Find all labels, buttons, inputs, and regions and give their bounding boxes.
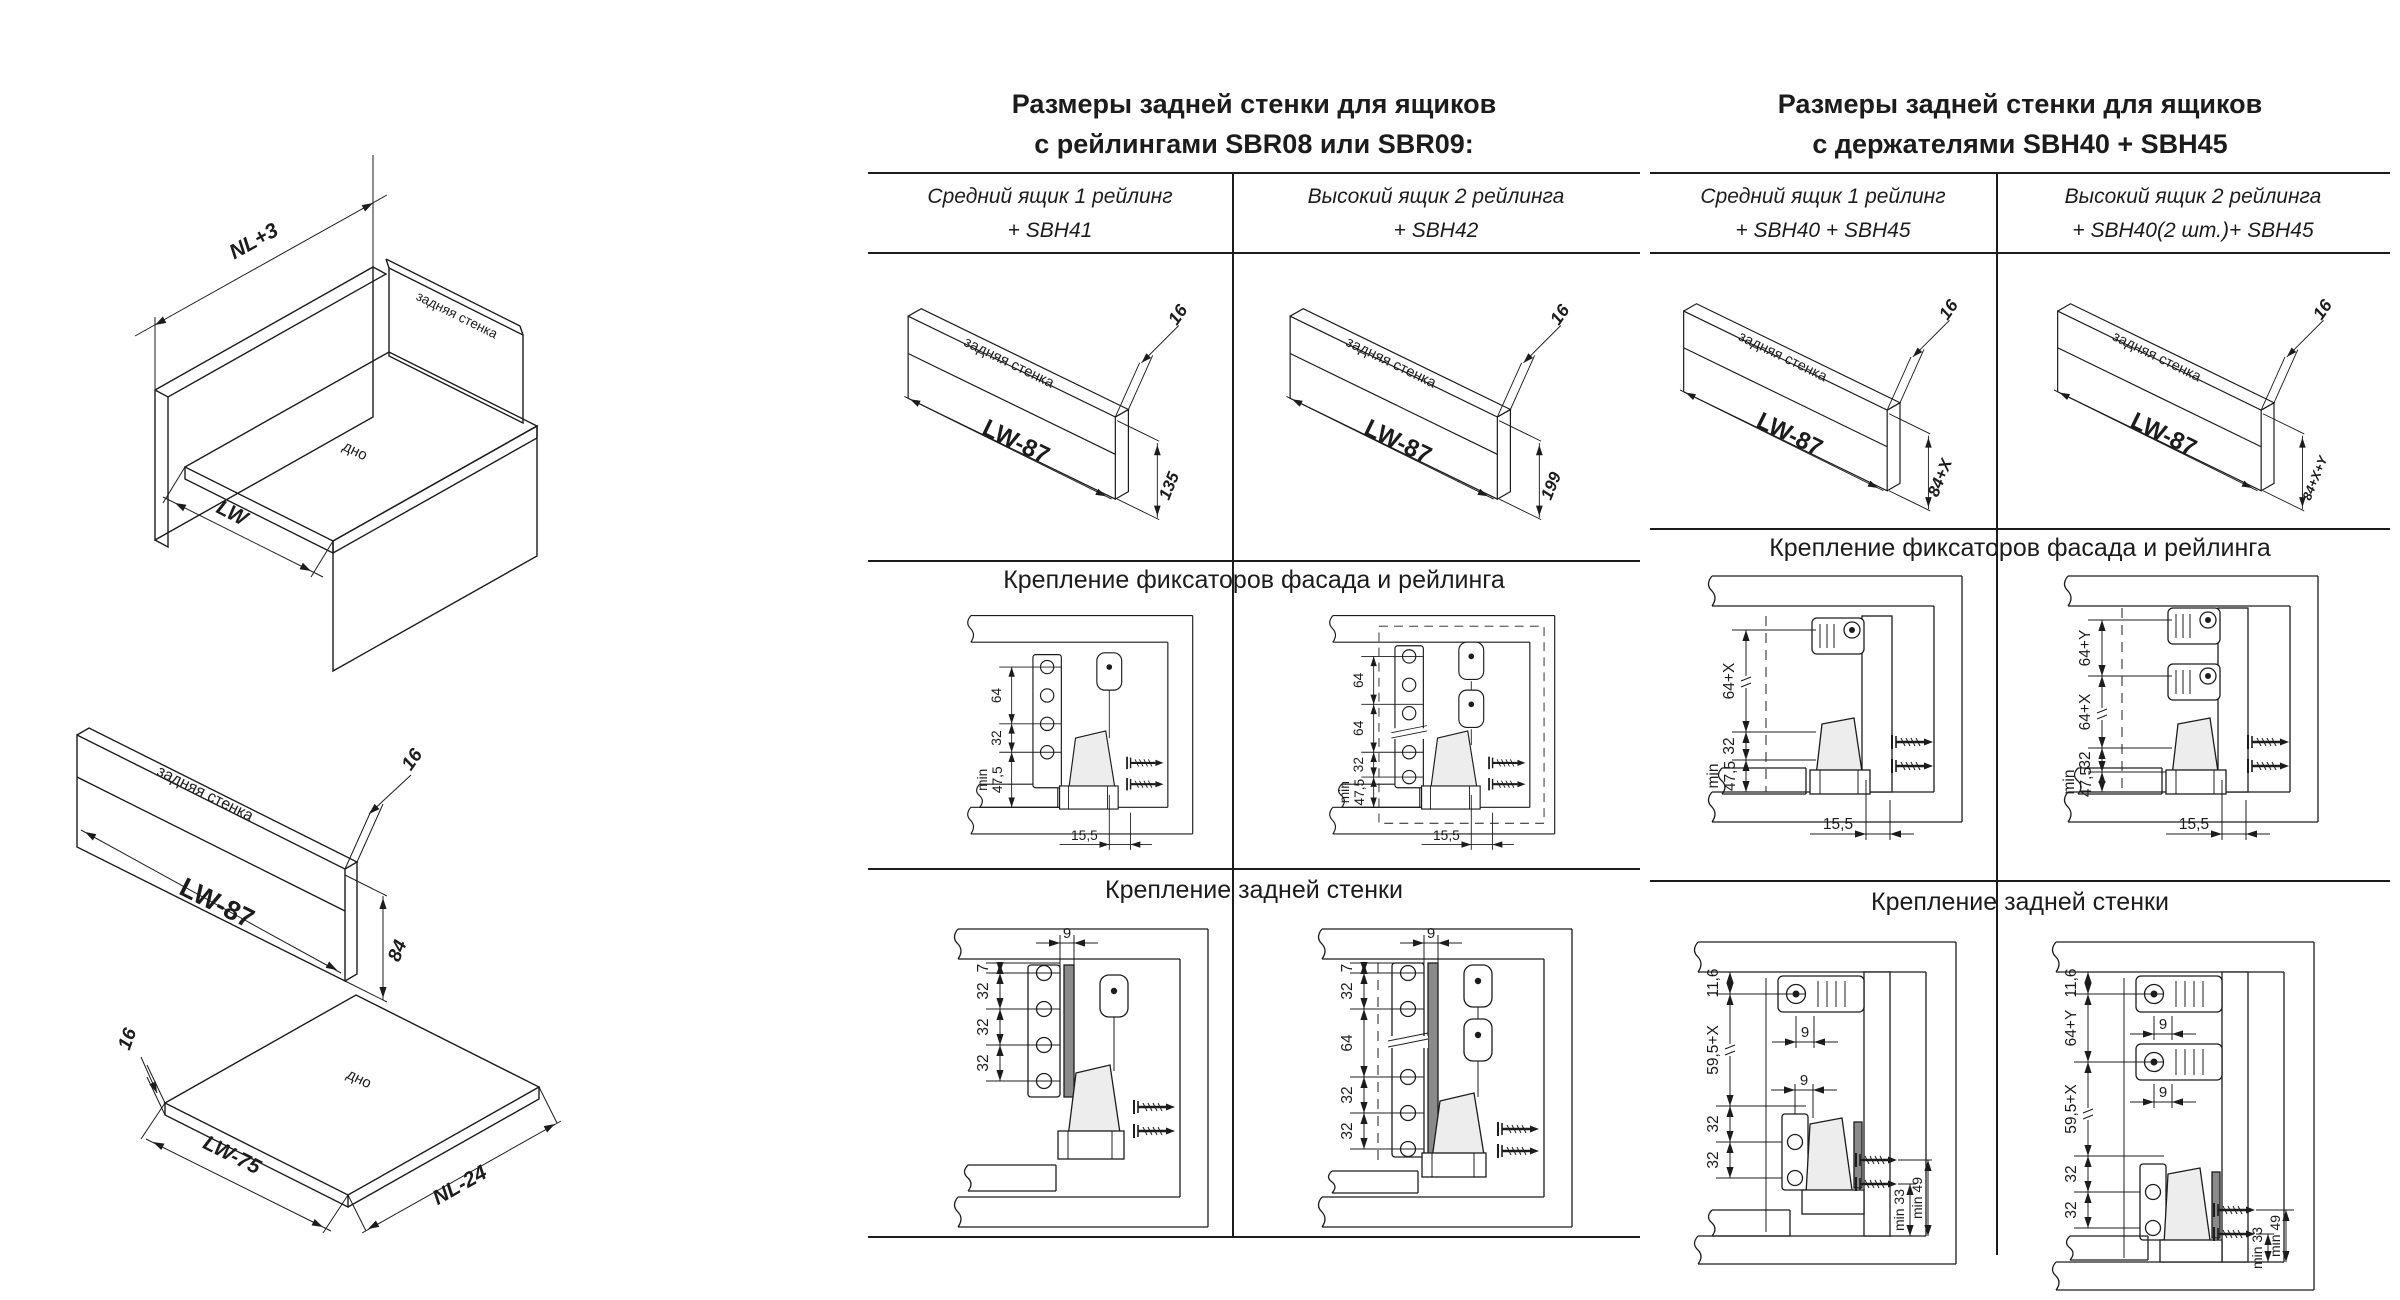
drawing-shape — [1068, 731, 1114, 791]
table-title-line2: с рейлингами SBR08 или SBR09: — [868, 124, 1640, 164]
drawing-shape — [1695, 942, 1702, 972]
section-title-fixators: Крепление фиксаторов фасада и рейлинга — [1650, 534, 2390, 563]
drawing-shape — [955, 929, 962, 959]
drawing-shape — [2098, 748, 2105, 759]
drawing-shape — [2146, 1221, 2161, 1236]
mount-diagram-fixators-high: 64+Y64+X32min47,515,5 — [2022, 572, 2342, 848]
bottom-panel-thickness: 16 — [114, 1025, 141, 1052]
dim-label: 64+Y — [2063, 1010, 2080, 1047]
drawing-shape — [1360, 1138, 1367, 1149]
drawing-shape — [1924, 739, 1933, 746]
drawing-shape — [1459, 690, 1484, 727]
drawing-shape — [1370, 752, 1376, 762]
back-panel-part — [77, 728, 357, 981]
column-header-high-drawer: Высокий ящик 2 рейлинга + SBH40(2 шт.)+ … — [1996, 180, 2390, 248]
drawing-shape — [2274, 350, 2298, 403]
drawing-shape — [996, 1034, 1003, 1045]
drawing-shape — [2098, 737, 2105, 748]
box-bottom-label: дно — [340, 438, 370, 465]
panel-height-label: 199 — [1537, 469, 1565, 503]
drawing-shape — [1517, 781, 1525, 787]
drawing-shape — [2084, 994, 2091, 1005]
drawing-shape — [2218, 608, 2248, 792]
column-header-line2: + SBH42 — [1232, 214, 1640, 248]
panel-height-label: 135 — [1155, 469, 1183, 503]
column-header-medium-drawer: Средний ящик 1 рейлинг + SBH41 — [868, 180, 1232, 248]
dim-label: 47,5 — [1352, 778, 1367, 805]
drawing-shape — [2065, 576, 2072, 606]
table-border — [1650, 880, 2390, 882]
drawing-shape — [2166, 770, 2226, 794]
drawing-shape — [1742, 749, 1749, 760]
drawing-shape — [2172, 1030, 2183, 1037]
column-header-line1: Средний ящик 1 рейлинг — [1650, 180, 1996, 214]
drawing-shape — [1475, 1032, 1481, 1038]
drawing-shape — [1510, 355, 1534, 409]
drawing-shape — [2164, 1168, 2210, 1244]
dim-label: 32 — [1705, 1115, 1722, 1132]
panel-thickness-label: 16 — [2309, 296, 2337, 324]
drawing-shape — [77, 735, 345, 981]
drawing-shape — [1464, 1019, 1492, 1061]
drawing-shape — [1530, 1148, 1539, 1155]
drawing-shape — [1319, 929, 1326, 959]
drawing-shape — [1785, 1038, 1796, 1045]
drawing-shape — [1726, 983, 1733, 994]
mount-diagram-back-wall-medium: 11,659,5+X323299min 33min 49 — [1660, 938, 1990, 1268]
drawing-shape — [379, 987, 386, 998]
panel-name-label: задняя стенка — [2110, 329, 2205, 386]
dim-label: min 33 — [2249, 1227, 2265, 1269]
table-title-line1: Размеры задней стенки для ящиков — [1650, 84, 2390, 124]
drawing-shape — [2246, 1207, 2255, 1214]
drawing-shape — [2098, 620, 2105, 631]
drawing-shape — [1370, 767, 1376, 777]
dim-label: 9 — [2159, 1016, 2167, 1033]
spec-table-railings-sbr: Размеры задней стенки для ящиков с рейли… — [868, 0, 1640, 1300]
table-border — [868, 868, 1640, 870]
drawing-shape — [1438, 939, 1449, 946]
dim-label: 15,5 — [1071, 828, 1098, 843]
drawing-shape — [1810, 770, 1870, 794]
drawing-shape — [1370, 656, 1376, 666]
drawing-shape — [1402, 707, 1415, 720]
drawing-shape — [2143, 1098, 2154, 1105]
drawing-shape — [1392, 963, 1424, 1157]
drawing-shape — [1816, 718, 1862, 776]
drawing-shape — [1684, 390, 1696, 400]
dim-label: 32 — [2063, 1165, 2080, 1182]
drawing-shape — [1008, 742, 1014, 752]
drawing-shape — [1475, 978, 1481, 984]
drawing-shape — [1462, 841, 1472, 847]
dim-nl3: NL+3 — [226, 219, 283, 264]
drawing-shape — [2263, 491, 2304, 511]
dim-label: 11,6 — [1705, 968, 1722, 997]
exploded-drawer-isometric-drawing: NL+3 LW задняя стенка дно задняя стенка … — [15, 35, 565, 1280]
drawing-shape — [1360, 998, 1367, 1009]
drawing-shape — [1008, 667, 1014, 677]
drawing-shape — [1008, 752, 1014, 762]
drawing-shape — [1468, 701, 1474, 707]
drawing-shape — [996, 1070, 1003, 1081]
column-header-line1: Высокий ящик 2 рейлинга — [1232, 180, 1640, 214]
panel-thickness-label: 16 — [1164, 301, 1192, 329]
dim-label: 9 — [1427, 925, 1435, 942]
dim-label: 9 — [1800, 1072, 1808, 1089]
section-title-back-wall: Крепление задней стенки — [1650, 888, 2390, 917]
drawing-shape — [2299, 438, 2306, 448]
drawing-shape — [2098, 761, 2105, 772]
drawing-shape — [155, 267, 373, 540]
drawing-shape — [1726, 1142, 1733, 1153]
drawing-shape — [1100, 975, 1128, 1017]
drawing-shape — [1855, 830, 1866, 837]
section-title-back-wall: Крепление задней стенки — [868, 876, 1640, 905]
drawing-shape — [996, 998, 1003, 1009]
drawing-shape — [1370, 798, 1376, 808]
panel-thickness-label: 16 — [1546, 301, 1574, 329]
drawing-shape — [1900, 350, 1924, 403]
table-border — [868, 252, 1640, 254]
dim-label: 32 — [975, 982, 992, 999]
column-header-line2: + SBH40(2 шт.)+ SBH45 — [1996, 214, 2390, 248]
dim-label: 32 — [1351, 757, 1366, 772]
panel-name-label: задняя стенка — [1343, 333, 1439, 391]
drawing-shape — [2067, 1236, 2074, 1260]
drawing-shape — [1695, 1236, 1702, 1264]
drawing-shape — [366, 1221, 379, 1233]
drawing-shape — [2065, 792, 2072, 822]
back-panel-size-diagram: задняя стенкаLW-871684+X+Y — [2032, 256, 2362, 522]
drawing-shape — [1370, 695, 1376, 705]
drawing-shape — [1925, 438, 1932, 448]
drawing-shape — [2246, 830, 2257, 837]
panel-name-label: задняя стенка — [961, 333, 1057, 391]
drawing-shape — [2053, 942, 2060, 972]
drawing-shape — [2084, 1156, 2091, 1167]
bottom-panel-width: LW-75 — [199, 1131, 264, 1179]
dim-label: 7 — [1339, 964, 1356, 973]
dim-label: 64 — [1351, 672, 1366, 688]
table-title-line2: с держателями SBH40 + SBH45 — [1650, 124, 2390, 164]
drawing-shape — [1906, 1225, 1913, 1236]
table-border — [1650, 528, 2390, 530]
drawing-shape — [312, 1219, 325, 1230]
panel-name-label: задняя стенка — [1736, 329, 1831, 386]
column-header-high-drawer: Высокий ящик 2 рейлинга + SBH42 — [1232, 180, 1640, 248]
drawing-shape — [1068, 1065, 1120, 1137]
drawing-shape — [1788, 1135, 1803, 1150]
drawing-shape — [1360, 1009, 1367, 1020]
drawing-shape — [151, 1139, 164, 1150]
drawing-shape — [2172, 718, 2218, 776]
dim-label: 32 — [989, 730, 1004, 745]
dim-label: 15,5 — [2179, 816, 2209, 833]
drawing-shape — [968, 807, 974, 834]
drawing-shape — [2084, 983, 2091, 994]
drawing-shape — [1888, 1181, 1897, 1188]
drawing-shape — [1040, 689, 1053, 702]
dim-label: 32 — [1339, 1122, 1356, 1139]
drawing-shape — [345, 775, 411, 869]
drawing-shape — [996, 1045, 1003, 1056]
section-title-fixators: Крепление фиксаторов фасада и рейлинга — [868, 566, 1640, 595]
drawing-shape — [1128, 355, 1152, 409]
dim-label: 9 — [2159, 1084, 2167, 1101]
drawing-shape — [1008, 798, 1014, 808]
drawing-shape — [909, 396, 921, 407]
back-panel-size-diagram: задняя стенкаLW-8716199 — [1264, 260, 1600, 531]
table-border — [1650, 172, 2390, 174]
drawing-shape — [1864, 972, 1890, 1236]
drawing-shape — [1742, 721, 1749, 732]
drawing-shape — [326, 962, 339, 974]
dim-label: 32 — [1339, 982, 1356, 999]
drawing-shape — [1430, 731, 1476, 791]
table-border-bottom — [868, 1236, 1640, 1238]
dim-label: min — [1705, 764, 1722, 789]
drawing-shape — [1360, 1077, 1367, 1088]
table-border — [1650, 252, 2390, 254]
dim-label: min 49 — [1909, 1177, 1925, 1219]
drawing-shape — [1530, 1126, 1539, 1133]
back-panel-height: 84 — [384, 937, 412, 965]
drawing-shape — [155, 267, 386, 397]
dim-label: 32 — [1339, 1086, 1356, 1103]
drawing-shape — [1100, 841, 1110, 847]
drawing-shape — [2280, 763, 2289, 770]
drawing-shape — [1924, 763, 1933, 770]
dim-label: 64 — [989, 687, 1004, 703]
drawing-shape — [2058, 311, 2262, 491]
back-panel-size-diagram: задняя стенкаLW-8716135 — [882, 260, 1218, 531]
dim-label: 32 — [975, 1054, 992, 1071]
drawing-shape — [1291, 396, 1303, 407]
dim-label: 64 — [1339, 1034, 1356, 1052]
drawer-assembly-instruction-page: NL+3 LW задняя стенка дно задняя стенка … — [0, 0, 2400, 1300]
drawing-shape — [1097, 653, 1122, 690]
dim-label: 59,5+X — [1705, 1025, 1722, 1075]
panel-width-label: LW-87 — [2126, 407, 2200, 462]
drawing-shape — [2280, 739, 2289, 746]
dim-label: 64+Y — [2077, 630, 2094, 667]
drawing-shape — [2084, 1145, 2091, 1156]
drawing-shape — [2084, 972, 2091, 983]
spec-table-holders-sbh: Размеры задней стенки для ящиков с держа… — [1650, 0, 2390, 1300]
drawing-shape — [2084, 1062, 2091, 1073]
drawing-shape — [1106, 664, 1112, 670]
drawing-shape — [1888, 1157, 1897, 1164]
box-dimension-lines — [135, 155, 387, 577]
drawing-shape — [1370, 777, 1376, 787]
table-title: Размеры задней стенки для ящиков с держа… — [1650, 84, 2390, 164]
drawing-shape — [1330, 616, 1336, 643]
drawing-shape — [2098, 665, 2105, 676]
back-panel-thickness: 16 — [398, 745, 428, 775]
box-back-wall-label: задняя стенка — [414, 288, 501, 341]
dim-label: 32 — [975, 1018, 992, 1035]
dim-label: 64+X — [2077, 693, 2094, 730]
drawing-shape — [1413, 939, 1424, 946]
drawing-shape — [1726, 1167, 1733, 1178]
drawing-shape — [1709, 792, 1716, 822]
drawing-shape — [345, 875, 387, 1002]
drawing-shape — [1111, 988, 1117, 994]
table-border — [868, 172, 1640, 174]
drawing-shape — [1890, 830, 1901, 837]
drawing-shape — [1360, 1102, 1367, 1113]
drawing-shape — [544, 1121, 557, 1133]
drawing-shape — [2146, 1185, 2161, 1200]
drawing-shape — [2053, 1262, 2060, 1290]
drawing-shape — [1064, 965, 1074, 1097]
dim-label: min — [975, 769, 990, 791]
drawing-shape — [1726, 1106, 1733, 1117]
dim-label: 32 — [1705, 1151, 1722, 1168]
drawing-shape — [1468, 654, 1474, 660]
drawing-shape — [2143, 1030, 2154, 1037]
drawing-shape — [2211, 830, 2222, 837]
drawing-shape — [2084, 1051, 2091, 1062]
column-header-medium-drawer: Средний ящик 1 рейлинг + SBH40 + SBH45 — [1650, 180, 1996, 248]
drawing-shape — [1813, 1086, 1824, 1093]
drawing-shape — [1154, 506, 1161, 516]
drawing-shape — [1166, 1104, 1175, 1111]
drawing-shape — [1814, 1038, 1825, 1045]
dim-label: min — [2061, 770, 2078, 795]
drawing-shape — [389, 268, 523, 423]
drawing-shape — [1290, 316, 1497, 499]
drawing-shape — [1464, 965, 1492, 1007]
drawing-shape — [379, 898, 386, 909]
mount-diagram-fixators-medium: 64+X32min47,515,5 — [1666, 572, 1986, 848]
drawing-shape — [1459, 642, 1484, 679]
drawing-shape — [1117, 499, 1159, 520]
back-panel-width: LW-87 — [175, 872, 259, 934]
dim-label: 64+X — [1721, 662, 1738, 699]
dim-label: 59,5+X — [2063, 1084, 2080, 1134]
drawing-shape — [1154, 445, 1161, 455]
dim-label: 64 — [1351, 720, 1366, 736]
drawing-shape — [1493, 841, 1503, 847]
drawing-shape — [1889, 414, 1930, 434]
drawing-shape — [1726, 1131, 1733, 1142]
drawing-shape — [1329, 1171, 1336, 1193]
drawing-shape — [2172, 1098, 2183, 1105]
table-border — [868, 560, 1640, 562]
drawing-shape — [1360, 1066, 1367, 1077]
drawing-shape — [1742, 781, 1749, 792]
dim-label: 32 — [1721, 737, 1738, 754]
dim-label: 47,5 — [990, 766, 1005, 793]
dim-label: 32 — [2063, 1201, 2080, 1218]
drawing-shape — [173, 500, 186, 511]
drawing-shape — [1155, 781, 1163, 787]
drawing-shape — [155, 155, 373, 395]
drawing-shape — [1360, 973, 1367, 984]
dim-label: 32 — [2077, 751, 2094, 768]
panel-height-label: 84+X+Y — [2299, 452, 2331, 502]
drawing-shape — [2058, 390, 2070, 400]
drawing-shape — [83, 829, 96, 841]
dim-label: 15,5 — [1433, 828, 1460, 843]
drawing-shape — [1726, 1095, 1733, 1106]
mount-diagram-back-wall-medium: 97323232 — [912, 925, 1232, 1231]
drawing-shape — [1319, 1197, 1326, 1227]
drawing-shape — [1784, 1086, 1795, 1093]
drawing-shape — [1008, 724, 1014, 734]
panel-height-label: 84+X — [1925, 456, 1957, 500]
drawing-shape — [955, 1197, 962, 1227]
column-divider — [1232, 172, 1234, 1236]
drawing-shape — [1536, 445, 1543, 455]
drawing-shape — [1432, 1093, 1484, 1159]
drawing-shape — [155, 397, 168, 547]
dim-label: 9 — [1063, 925, 1071, 942]
mount-diagram-fixators-high: 646432min47,515,5 — [1292, 612, 1576, 857]
dim-label: min — [1337, 781, 1352, 803]
drawing-shape — [1517, 760, 1525, 766]
column-header-line1: Высокий ящик 2 рейлинга — [1996, 180, 2390, 214]
drawing-shape — [996, 1009, 1003, 1020]
drawing-shape — [1499, 421, 1541, 442]
mount-diagram-back-wall-high: 11,664+Y59,5+X323299min 33min 49 — [2018, 938, 2348, 1294]
drawing-shape — [1806, 1118, 1852, 1194]
dim-label: 15,5 — [1823, 816, 1853, 833]
drawing-shape — [163, 467, 333, 577]
dim-label: 47,5 — [1722, 761, 1739, 791]
dim-label: 9 — [1801, 1024, 1809, 1041]
panel-width-label: LW-87 — [978, 414, 1054, 469]
drawing-shape — [1499, 499, 1541, 520]
drawing-shape — [1742, 732, 1749, 743]
panel-width-label: LW-87 — [1752, 407, 1826, 462]
drawing-shape — [1726, 972, 1733, 983]
panel-width-label: LW-87 — [1360, 414, 1436, 469]
drawing-shape — [1049, 939, 1060, 946]
drawing-shape — [135, 195, 387, 336]
drawing-shape — [1862, 616, 1892, 792]
dim-label: min 33 — [1891, 1189, 1907, 1231]
drawing-shape — [1788, 1171, 1803, 1186]
drawing-shape — [1360, 1113, 1367, 1124]
drawing-shape — [2084, 1217, 2091, 1228]
drawing-shape — [1166, 1128, 1175, 1135]
dim-label: min 49 — [2267, 1215, 2283, 1257]
drawing-shape — [1684, 311, 1888, 491]
dim-label: 7 — [975, 964, 992, 973]
drawing-shape — [965, 1165, 972, 1191]
drawing-shape — [968, 616, 974, 643]
back-panel-size-diagram: задняя стенкаLW-871684+X — [1658, 256, 1988, 522]
drawing-shape — [1802, 1190, 1864, 1214]
drawing-shape — [1370, 704, 1376, 714]
drawing-shape — [2263, 414, 2304, 434]
dim-label: 47,5 — [2078, 767, 2095, 797]
drawing-shape — [1849, 627, 1855, 633]
dim-lw: LW — [213, 496, 253, 532]
drawing-shape — [1709, 1210, 1716, 1236]
drawing-shape — [2084, 1181, 2091, 1192]
bottom-panel-depth: NL-24 — [429, 1161, 491, 1210]
mount-diagram-back-wall-high: 9732643232 — [1276, 925, 1596, 1231]
drawing-shape — [1131, 841, 1141, 847]
drawing-shape — [1117, 421, 1159, 442]
column-header-line1: Средний ящик 1 рейлинг — [868, 180, 1232, 214]
panel-thickness-label: 16 — [1935, 296, 1963, 324]
drawing-shape — [2098, 781, 2105, 792]
